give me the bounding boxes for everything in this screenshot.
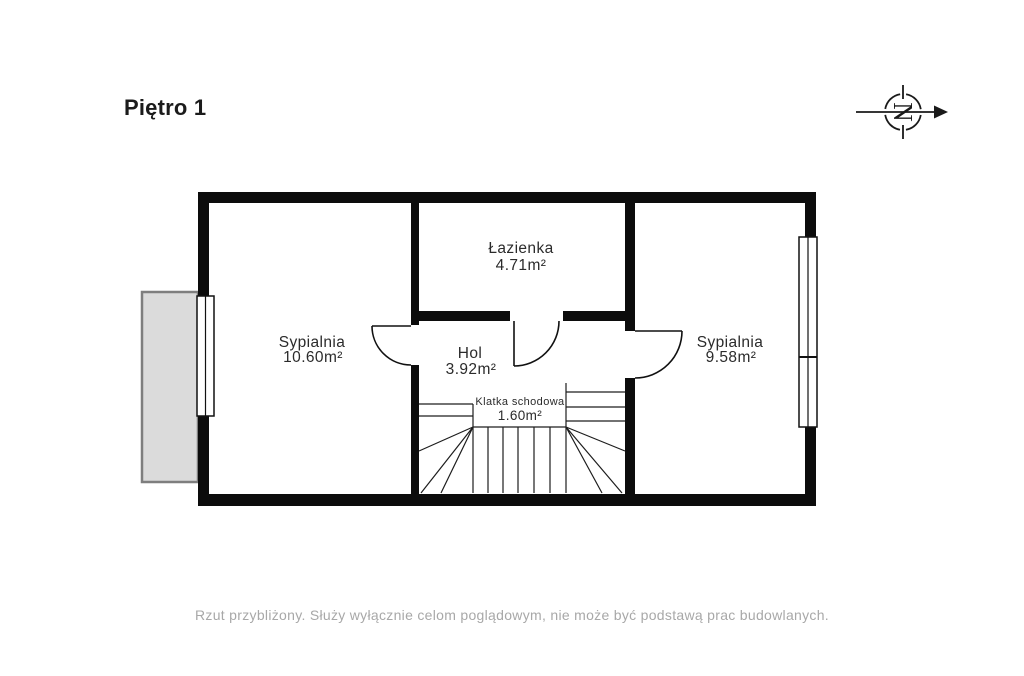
svg-text:9.58m²: 9.58m² [706, 349, 757, 366]
compass-letter: N [888, 102, 918, 122]
svg-text:Klatka schodowa: Klatka schodowa [475, 396, 565, 408]
svg-text:Łazienka: Łazienka [488, 240, 553, 257]
wall-bedroom2-lower [625, 378, 635, 494]
door-bedroom-left-icon [372, 326, 411, 365]
svg-text:Hol: Hol [458, 345, 482, 362]
room-label-bathroom: Łazienka 4.71m² [488, 240, 553, 274]
room-labels: Sypialnia 10.60m² Łazienka 4.71m² Hol 3.… [279, 240, 764, 423]
compass-arrowhead-icon [934, 106, 948, 119]
svg-text:4.71m²: 4.71m² [496, 257, 547, 274]
wall-left-lower [198, 415, 209, 506]
room-label-hall: Hol 3.92m² [446, 345, 497, 378]
svg-text:3.92m²: 3.92m² [446, 361, 497, 378]
wall-bathroom-right [563, 311, 625, 321]
wall-bathroom-left [419, 311, 510, 321]
door-bedroom-right-icon [635, 331, 682, 378]
room-label-staircase: Klatka schodowa 1.60m² [475, 396, 565, 423]
stair-treads-left [419, 404, 473, 493]
stair-winder-left [419, 427, 473, 493]
window-left-icon [197, 296, 214, 416]
disclaimer-text: Rzut przybliżony. Służy wyłącznie celom … [0, 607, 1024, 623]
room-label-bedroom-left: Sypialnia 10.60m² [279, 334, 346, 366]
room-label-bedroom-right: Sypialnia 9.58m² [697, 334, 764, 366]
wall-bedroom1-upper [411, 203, 419, 325]
svg-text:10.60m²: 10.60m² [283, 349, 343, 366]
balcony [142, 292, 198, 482]
wall-top [198, 192, 816, 203]
wall-bottom [198, 494, 816, 506]
door-bathroom-icon [514, 321, 559, 366]
floor-plan: Sypialnia 10.60m² Łazienka 4.71m² Hol 3.… [0, 0, 1024, 676]
wall-bedroom1-lower [411, 365, 419, 494]
svg-text:1.60m²: 1.60m² [498, 408, 543, 423]
wall-left-upper [198, 192, 209, 297]
compass-north-icon: N [856, 85, 948, 139]
wall-bedroom2-upper [625, 203, 635, 331]
window-right-icon [799, 237, 817, 427]
stair-winder-right [566, 427, 625, 493]
wall-right-upper [805, 192, 816, 237]
wall-right-lower [805, 427, 816, 506]
stair-treads-middle [473, 427, 566, 493]
